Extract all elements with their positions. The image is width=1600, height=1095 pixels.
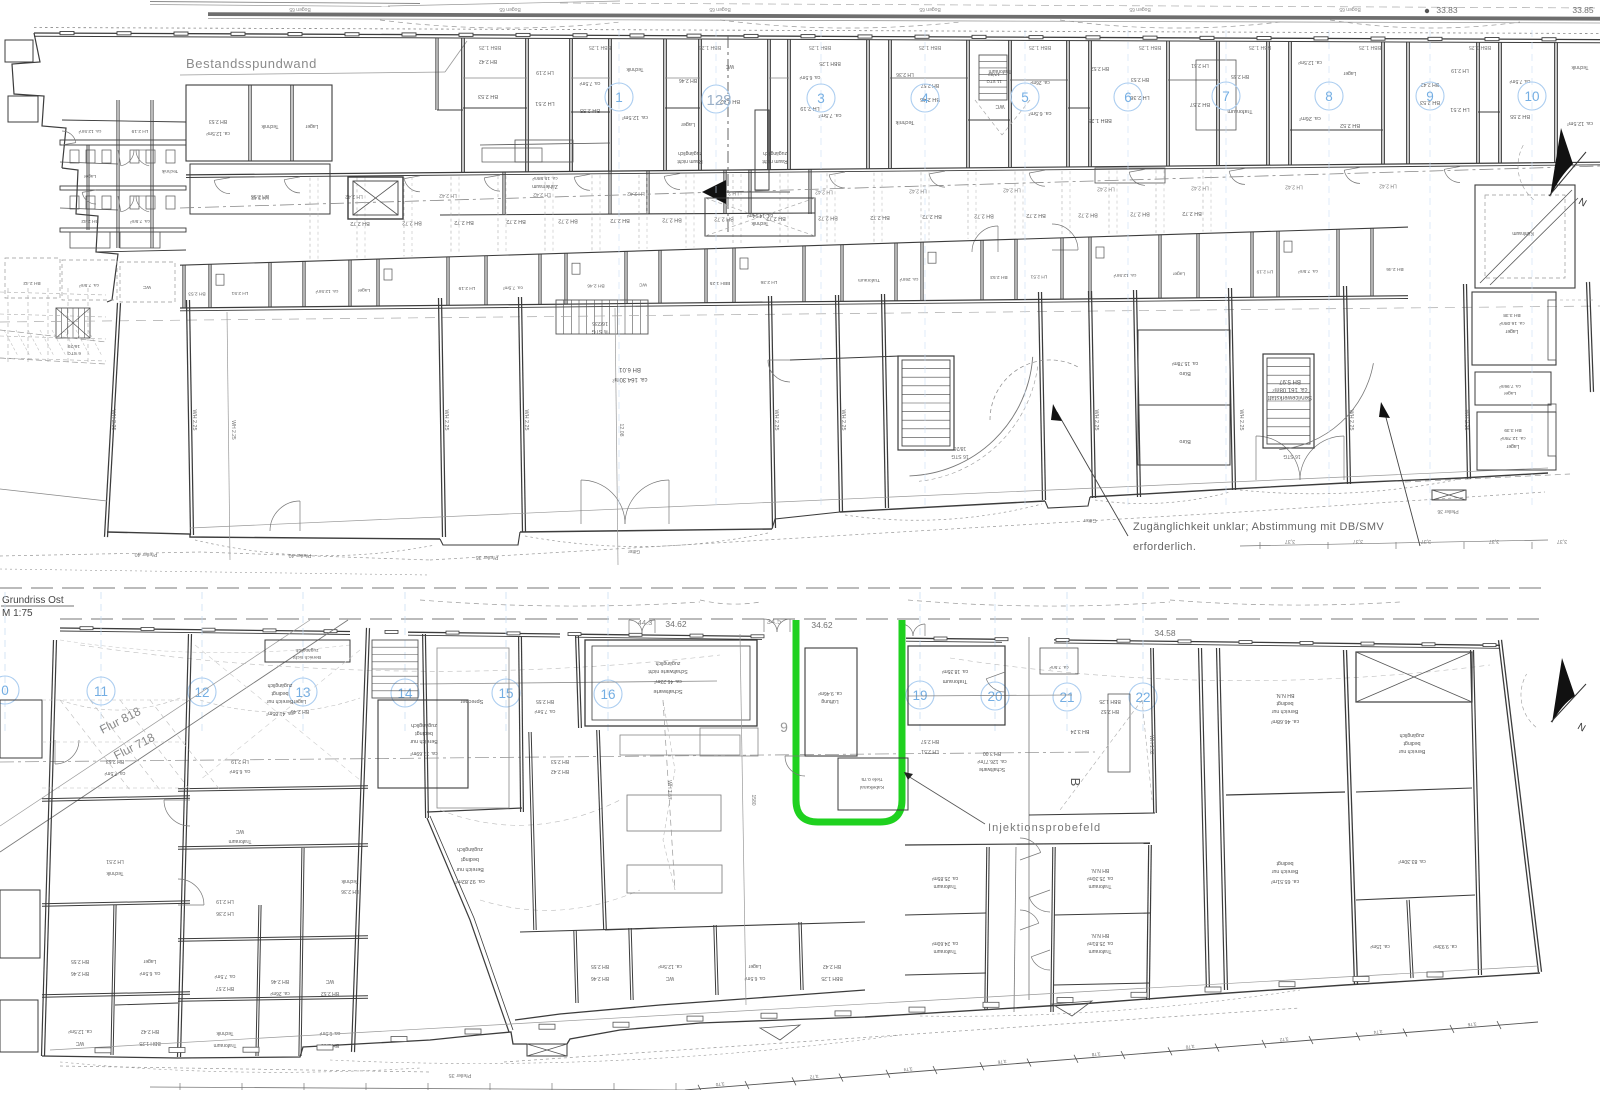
svg-text:BBH 1.25: BBH 1.25	[1469, 44, 1491, 50]
svg-text:3,74: 3,74	[903, 1066, 913, 1072]
svg-text:BH 2.53: BH 2.53	[990, 274, 1008, 280]
svg-text:ca. 14.94m²: ca. 14.94m²	[746, 212, 773, 218]
svg-text:BBH 1.25: BBH 1.25	[589, 44, 611, 50]
svg-text:Tiefe 0.75: Tiefe 0.75	[861, 776, 882, 782]
svg-text:Bogen 65: Bogen 65	[709, 6, 731, 12]
svg-text:LH 2.36: LH 2.36	[760, 279, 777, 285]
svg-text:BH 2.42: BH 2.42	[551, 768, 569, 774]
svg-text:BH 2.53: BH 2.53	[478, 93, 498, 99]
svg-text:BH 2.55: BH 2.55	[580, 107, 600, 113]
svg-text:BH 2.42: BH 2.42	[141, 1028, 159, 1034]
svg-text:LH 2.36: LH 2.36	[1130, 94, 1149, 100]
svg-text:BBH 1.25: BBH 1.25	[1139, 44, 1161, 50]
svg-text:18/26: 18/26	[954, 445, 967, 451]
svg-text:LH 2.51: LH 2.51	[921, 748, 939, 754]
svg-text:LH 2.19: LH 2.19	[1451, 67, 1469, 73]
svg-text:ca. 7.5m²: ca. 7.5m²	[1049, 665, 1069, 670]
svg-text:ca. 12.5m²: ca. 12.5m²	[1567, 120, 1593, 126]
svg-text:erforderlich.: erforderlich.	[1133, 541, 1196, 553]
svg-text:bedingt: bedingt	[1403, 740, 1421, 746]
svg-text:BBH 1.25: BBH 1.25	[1088, 117, 1112, 123]
svg-text:ca. 92.82m²: ca. 92.82m²	[455, 878, 485, 884]
svg-text:LH 2.19: LH 2.19	[1256, 269, 1273, 275]
svg-text:9: 9	[1426, 89, 1434, 104]
svg-text:ca. 7.5m²: ca. 7.5m²	[130, 218, 150, 224]
svg-text:ca. 26m²: ca. 26m²	[270, 990, 290, 996]
svg-text:LH 2.51: LH 2.51	[106, 858, 124, 864]
svg-text:BH 2.72: BH 2.72	[454, 219, 473, 225]
svg-text:LH 2.42: LH 2.42	[1097, 186, 1115, 192]
svg-text:33.83: 33.83	[1436, 5, 1458, 15]
svg-text:LH 2.42: LH 2.42	[533, 191, 551, 197]
svg-text:bedingt: bedingt	[271, 690, 289, 696]
svg-text:LH 2.42: LH 2.42	[1003, 187, 1021, 193]
svg-text:ca. 7.5m²: ca. 7.5m²	[579, 80, 600, 86]
svg-text:BBH 1.25: BBH 1.25	[1099, 698, 1121, 704]
svg-text:0: 0	[1, 683, 9, 698]
svg-text:WH 2.25: WH 2.25	[1463, 410, 1469, 431]
svg-text:Grundriss Ost: Grundriss Ost	[2, 595, 64, 606]
svg-text:Bogen 65: Bogen 65	[499, 6, 521, 12]
svg-text:zugänglich: zugänglich	[267, 682, 292, 688]
svg-text:BH 2.42: BH 2.42	[823, 963, 841, 969]
svg-text:Pfeiler 36: Pfeiler 36	[1437, 508, 1458, 514]
svg-text:ca. 12.5m²: ca. 12.5m²	[622, 114, 648, 120]
svg-text:1: 1	[615, 90, 623, 105]
svg-text:B: B	[1068, 778, 1083, 787]
svg-text:LH 2.51: LH 2.51	[1450, 106, 1469, 112]
svg-text:LH 2.51: LH 2.51	[231, 290, 248, 296]
svg-text:Gitter: Gitter	[1083, 517, 1096, 523]
svg-text:ca. 46.23m²: ca. 46.23m²	[654, 678, 682, 684]
svg-text:BH 2.53: BH 2.53	[551, 758, 569, 764]
svg-text:BH 2.72: BH 2.72	[974, 213, 993, 219]
svg-text:Raum nicht: Raum nicht	[762, 158, 788, 164]
svg-text:BH 2.53: BH 2.53	[1131, 76, 1149, 82]
svg-text:Raum nicht: Raum nicht	[677, 158, 703, 164]
svg-text:Büro: Büro	[1179, 438, 1190, 444]
svg-text:ca. 6.5m²: ca. 6.5m²	[744, 975, 765, 981]
svg-text:BH 2.72: BH 2.72	[350, 220, 369, 226]
svg-text:ca. 6.5m²: ca. 6.5m²	[799, 74, 820, 80]
svg-text:% STG: % STG	[592, 328, 609, 334]
svg-text:BH 2.53: BH 2.53	[209, 118, 227, 124]
svg-text:BH 2.46: BH 2.46	[71, 970, 89, 976]
svg-text:BBH 1.25: BBH 1.25	[1359, 44, 1381, 50]
svg-text:Büro: Büro	[1179, 370, 1190, 376]
svg-text:Zugänglichkeit unklar; Abstim: Zugänglichkeit unklar; Abstimmung mit DB…	[1133, 521, 1384, 533]
svg-text:BH N.N.: BH N.N.	[1091, 932, 1109, 938]
svg-text:BH 2.42: BH 2.42	[479, 58, 497, 64]
svg-text:Bereich nur: Bereich nur	[266, 698, 293, 704]
svg-text:ca. 15m²: ca. 15m²	[1370, 943, 1390, 949]
svg-text:BH 2.72: BH 2.72	[506, 218, 525, 224]
svg-text:WH 2.25: WH 2.25	[773, 410, 779, 431]
svg-text:WH 2.25: WH 2.25	[110, 410, 116, 431]
svg-text:Traforaum: Traforaum	[942, 678, 967, 684]
svg-text:LH 2.42: LH 2.42	[251, 194, 269, 200]
svg-text:BH 2.46: BH 2.46	[587, 283, 605, 289]
svg-text:11 STG: 11 STG	[986, 79, 1002, 84]
svg-text:16: 16	[600, 687, 615, 702]
svg-text:LH 2.42: LH 2.42	[1191, 185, 1209, 191]
svg-text:LH 2.19: LH 2.19	[131, 128, 148, 134]
svg-text:WH 1.57: WH 1.57	[666, 780, 672, 800]
svg-text:3,37: 3,37	[1557, 538, 1567, 544]
svg-text:BH 2.72: BH 2.72	[610, 217, 629, 223]
svg-text:Injektionsprobefeld: Injektionsprobefeld	[988, 822, 1101, 834]
svg-text:Schaltwarte nicht: Schaltwarte nicht	[648, 668, 688, 674]
svg-text:3: 3	[817, 91, 825, 106]
svg-text:zugänglich: zugänglich	[411, 722, 437, 728]
svg-text:BH 3.39: BH 3.39	[1504, 427, 1522, 433]
svg-text:ca. 6.5m²: ca. 6.5m²	[1028, 110, 1051, 116]
svg-text:Pfeiler 35: Pfeiler 35	[449, 1072, 472, 1078]
svg-text:Traforaum: Traforaum	[214, 1042, 237, 1048]
svg-text:BH 6.01: BH 6.01	[619, 366, 641, 372]
svg-text:Bogen 65: Bogen 65	[1129, 6, 1151, 12]
svg-text:ca. 7.5m²: ca. 7.5m²	[534, 708, 555, 714]
svg-text:ca. 9.93m²: ca. 9.93m²	[1433, 943, 1457, 949]
svg-text:Traforaum: Traforaum	[934, 883, 957, 889]
svg-text:Bereich nur: Bereich nur	[1398, 748, 1425, 754]
svg-text:WC: WC	[665, 975, 674, 981]
svg-text:Technik: Technik	[1571, 64, 1588, 70]
svg-text:BBH 1.25: BBH 1.25	[819, 60, 841, 66]
svg-text:WH 2.25: WH 2.25	[1348, 410, 1354, 431]
svg-text:ca. 15.78m²: ca. 15.78m²	[1171, 360, 1198, 366]
svg-text:zugänglich: zugänglich	[655, 660, 680, 666]
svg-text:BH 2.72: BH 2.72	[1130, 211, 1149, 217]
svg-text:ca. 6.5m²: ca. 6.5m²	[139, 970, 160, 976]
svg-text:WH 2.25: WH 2.25	[443, 410, 449, 431]
svg-text:ca. 161.08m²: ca. 161.08m²	[1272, 386, 1307, 392]
svg-text:LH 2.42: LH 2.42	[1285, 184, 1303, 190]
svg-text:1580: 1580	[750, 794, 756, 805]
svg-text:3,72: 3,72	[809, 1074, 819, 1080]
svg-text:BH 2.55: BH 2.55	[1510, 113, 1530, 119]
svg-text:ca. 26m²: ca. 26m²	[899, 276, 918, 282]
svg-text:BH 2.72: BH 2.72	[1182, 210, 1201, 216]
svg-text:ca. 7.5m²: ca. 7.5m²	[104, 770, 125, 776]
svg-text:ca. 7.5m²: ca. 7.5m²	[214, 973, 235, 979]
svg-text:21: 21	[1059, 690, 1074, 705]
svg-text:BH 2.72: BH 2.72	[1026, 212, 1045, 218]
svg-text:BH 2.72: BH 2.72	[870, 214, 889, 220]
svg-text:BH N.N.: BH N.N.	[1091, 867, 1109, 873]
svg-text:M 1:75: M 1:75	[2, 608, 33, 619]
svg-text:Bogen 65: Bogen 65	[1339, 6, 1361, 12]
svg-text:BBH 1.25: BBH 1.25	[709, 280, 730, 286]
svg-text:WH 1.52: WH 1.52	[1148, 735, 1154, 755]
svg-text:Traforaum: Traforaum	[934, 948, 957, 954]
svg-text:LH 2.51: LH 2.51	[1191, 62, 1209, 68]
svg-text:Lager: Lager	[83, 173, 96, 179]
svg-text:BH 2.57: BH 2.57	[921, 738, 939, 744]
svg-text:BH 2.55: BH 2.55	[1231, 73, 1249, 79]
svg-text:Lager: Lager	[305, 123, 318, 129]
svg-text:WC: WC	[725, 63, 734, 69]
svg-text:zugänglich: zugänglich	[457, 846, 483, 852]
svg-text:Technik: Technik	[261, 123, 278, 129]
svg-text:BH 2.52: BH 2.52	[1340, 122, 1360, 128]
svg-text:ca. 46.68m²: ca. 46.68m²	[1271, 718, 1300, 724]
svg-text:ca. 12.5m²: ca. 12.5m²	[206, 130, 230, 136]
svg-text:zugänglich: zugänglich	[295, 647, 318, 653]
svg-text:BH 2.52: BH 2.52	[321, 990, 339, 996]
svg-text:zugänglich: zugänglich	[678, 150, 702, 156]
svg-text:LH 2.42: LH 2.42	[627, 190, 645, 196]
svg-text:16 STG: 16 STG	[1283, 453, 1300, 459]
svg-text:16 STG: 16 STG	[951, 453, 968, 459]
svg-text:BH 2.57: BH 2.57	[1190, 101, 1210, 107]
svg-text:Lager: Lager	[1505, 328, 1518, 334]
svg-text:Traforaum: Traforaum	[1089, 883, 1112, 889]
svg-text:ca. 7.5m²: ca. 7.5m²	[818, 112, 841, 118]
svg-text:BBH 1.25: BBH 1.25	[919, 44, 941, 50]
svg-text:ca. 7.5m²: ca. 7.5m²	[79, 282, 99, 288]
svg-text:ca. 126.77m²: ca. 126.77m²	[977, 758, 1007, 764]
svg-text:Bereich nicht: Bereich nicht	[292, 654, 320, 660]
svg-text:LH 2.19: LH 2.19	[458, 285, 475, 291]
svg-text:WC: WC	[995, 103, 1004, 109]
svg-text:WC: WC	[235, 828, 244, 834]
svg-text:BH 2.72: BH 2.72	[662, 216, 681, 222]
svg-text:ca. 16.08m²: ca. 16.08m²	[1499, 320, 1525, 326]
svg-text:WH 2.25: WH 2.25	[191, 410, 197, 431]
svg-text:LH 2.51: LH 2.51	[1030, 273, 1047, 279]
svg-text:BBH 1.25: BBH 1.25	[479, 44, 501, 50]
svg-text:3,70: 3,70	[1185, 1044, 1195, 1050]
svg-text:7: 7	[1222, 89, 1230, 104]
svg-text:bedingt: bedingt	[461, 856, 479, 862]
svg-text:ca. 25.30m²: ca. 25.30m²	[1086, 875, 1113, 881]
svg-text:ca. 65.51m²: ca. 65.51m²	[1271, 878, 1300, 884]
svg-text:BH 2.57: BH 2.57	[216, 985, 234, 991]
svg-text:WH 2.25: WH 2.25	[523, 410, 529, 431]
svg-text:LH 2.42: LH 2.42	[909, 187, 927, 193]
svg-text:BH 3.38: BH 3.38	[1503, 312, 1521, 318]
svg-text:BH 2.46: BH 2.46	[591, 975, 609, 981]
svg-text:3,37: 3,37	[1285, 538, 1295, 544]
svg-text:128: 128	[706, 92, 731, 109]
svg-text:Bereich nur: Bereich nur	[1271, 708, 1298, 714]
svg-text:ca. 25.85m²: ca. 25.85m²	[931, 875, 958, 881]
svg-text:34.58: 34.58	[1154, 628, 1176, 638]
svg-text:Technik: Technik	[895, 119, 914, 125]
svg-text:WC: WC	[325, 978, 334, 984]
svg-text:14: 14	[397, 686, 413, 701]
svg-text:LH 2.42: LH 2.42	[439, 192, 457, 198]
svg-text:ca. 26m²: ca. 26m²	[1030, 79, 1050, 85]
svg-text:ca. 9.46m²: ca. 9.46m²	[818, 690, 842, 696]
svg-text:ca. 7.5m²: ca. 7.5m²	[503, 284, 523, 290]
svg-text:ca. 6.5m²: ca. 6.5m²	[319, 1030, 340, 1036]
svg-text:Lager: Lager	[1506, 443, 1519, 449]
svg-text:Lager: Lager	[748, 963, 761, 969]
svg-text:Lager: Lager	[1503, 390, 1516, 396]
svg-text:Lager: Lager	[681, 121, 695, 127]
svg-text:BH 2.55: BH 2.55	[71, 958, 89, 964]
svg-text:11: 11	[94, 684, 108, 699]
svg-text:Servicewerkstatt: Servicewerkstatt	[1268, 394, 1312, 400]
svg-text:LH 2.36: LH 2.36	[896, 71, 914, 77]
svg-text:LH 2.19: LH 2.19	[536, 69, 554, 75]
svg-text:BH 2.53: BH 2.53	[106, 758, 124, 764]
svg-text:LH 2.42: LH 2.42	[815, 188, 833, 194]
svg-text:BH N.N.: BH N.N.	[1275, 692, 1294, 698]
svg-text:LH 2.36: LH 2.36	[216, 910, 234, 916]
svg-text:WC: WC	[142, 284, 151, 290]
svg-text:WH 2.25: WH 2.25	[1238, 410, 1244, 431]
svg-text:ca. 12.5m²: ca. 12.5m²	[68, 1028, 92, 1034]
svg-text:WC: WC	[75, 1040, 84, 1046]
svg-text:ca. 12.78m²: ca. 12.78m²	[1500, 435, 1526, 441]
svg-text:4: 4	[921, 91, 929, 106]
svg-text:bedingt: bedingt	[1276, 860, 1294, 866]
svg-text:3,72: 3,72	[1279, 1037, 1289, 1043]
svg-text:BH 2.46: BH 2.46	[679, 77, 697, 83]
svg-text:Lager: Lager	[1343, 70, 1356, 76]
svg-text:ca. 7.96m²: ca. 7.96m²	[1499, 384, 1521, 389]
svg-text:BH 2.72: BH 2.72	[1078, 211, 1097, 217]
svg-text:LH 2.42: LH 2.42	[1379, 183, 1397, 189]
svg-text:Gitter: Gitter	[628, 548, 641, 554]
svg-text:13: 13	[295, 685, 310, 700]
svg-text:3,76: 3,76	[1467, 1022, 1477, 1028]
svg-text:34.62: 34.62	[665, 619, 687, 629]
svg-text:3,74: 3,74	[1373, 1029, 1383, 1035]
svg-text:34.5: 34.5	[767, 617, 782, 626]
svg-text:Bereich nur: Bereich nur	[1271, 868, 1298, 874]
svg-text:3,76: 3,76	[997, 1059, 1007, 1065]
svg-text:Bogen 65: Bogen 65	[289, 6, 311, 12]
svg-text:Pfeiler 40: Pfeiler 40	[135, 551, 158, 557]
svg-text:ca. 164.30m²: ca. 164.30m²	[612, 376, 647, 382]
svg-text:6: 6	[1124, 90, 1132, 105]
svg-text:BBH 1.25: BBH 1.25	[809, 44, 831, 50]
svg-text:ca. 24.60m²: ca. 24.60m²	[931, 940, 958, 946]
svg-text:ca. 12.5m²: ca. 12.5m²	[315, 288, 338, 294]
svg-text:Technik: Technik	[216, 1030, 233, 1036]
svg-text:ca. 17.69m²: ca. 17.69m²	[410, 750, 438, 756]
svg-text:Lager: Lager	[1172, 271, 1185, 277]
svg-text:Technik: Technik	[751, 220, 768, 226]
svg-text:BH 2.46: BH 2.46	[291, 708, 309, 714]
svg-text:BH 2.72: BH 2.72	[714, 216, 733, 222]
svg-text:Lager: Lager	[293, 698, 306, 704]
svg-text:zugänglich: zugänglich	[1399, 732, 1424, 738]
svg-text:BBH 1.25: BBH 1.25	[1029, 44, 1051, 50]
svg-text:8: 8	[1325, 89, 1333, 104]
svg-text:BH 2.42: BH 2.42	[81, 218, 99, 224]
svg-text:3,37: 3,37	[1489, 538, 1499, 544]
svg-text:bedingt: bedingt	[1276, 700, 1294, 706]
svg-text:WH 2.25: WH 2.25	[1093, 410, 1099, 431]
svg-text:Schaltwarte: Schaltwarte	[979, 766, 1005, 772]
svg-text:BH 2.42: BH 2.42	[23, 280, 41, 286]
svg-text:15: 15	[498, 686, 513, 701]
svg-text:LH 2.19: LH 2.19	[216, 898, 234, 904]
svg-text:WH 2.25: WH 2.25	[230, 420, 236, 440]
svg-text:ca. 12.5m²: ca. 12.5m²	[1113, 272, 1136, 278]
svg-text:Technik: Technik	[626, 66, 643, 72]
svg-text:Lüftung: Lüftung	[821, 698, 838, 704]
svg-text:33.85: 33.85	[1572, 5, 1594, 15]
svg-text:Bereich nur: Bereich nur	[456, 866, 484, 872]
svg-text:BBH 1.25: BBH 1.25	[821, 975, 843, 981]
svg-text:ca. 12.5m²: ca. 12.5m²	[78, 128, 101, 134]
svg-text:Technik: Technik	[106, 870, 123, 876]
svg-text:BH 2.53: BH 2.53	[188, 291, 206, 297]
svg-text:Pfeiler 40: Pfeiler 40	[289, 552, 312, 558]
svg-text:10: 10	[1524, 89, 1539, 104]
svg-text:ca. 83.30m²: ca. 83.30m²	[1398, 858, 1426, 864]
svg-text:ca. 12.5m²: ca. 12.5m²	[658, 963, 682, 969]
svg-text:BH 3.00: BH 3.00	[983, 750, 1001, 756]
svg-text:BH 3.24: BH 3.24	[1071, 728, 1090, 734]
svg-text:ca. 7.5m²: ca. 7.5m²	[1298, 268, 1318, 274]
svg-text:BH 2.46: BH 2.46	[271, 978, 289, 984]
svg-text:LH 2.51: LH 2.51	[535, 100, 554, 106]
svg-text:zugänglich: zugänglich	[763, 150, 787, 156]
svg-text:BH 2.72: BH 2.72	[558, 218, 577, 224]
svg-text:LH 2.19: LH 2.19	[231, 758, 249, 764]
svg-text:3,37: 3,37	[1353, 538, 1363, 544]
svg-text:Bogen 65: Bogen 65	[919, 6, 941, 12]
svg-text:Lager: Lager	[143, 958, 156, 964]
svg-text:Traforaum: Traforaum	[858, 277, 880, 283]
svg-text:BH 5.97: BH 5.97	[1279, 378, 1301, 384]
svg-text:BH 2.55: BH 2.55	[591, 963, 609, 969]
svg-text:Bereich nur: Bereich nur	[410, 738, 438, 744]
svg-text:Sprecher: Sprecher	[461, 698, 484, 704]
svg-text:Technik: Technik	[341, 878, 358, 884]
svg-text:Bestandsspundwand: Bestandsspundwand	[186, 56, 317, 71]
svg-text:Lager: Lager	[357, 287, 370, 293]
svg-text:3,70: 3,70	[715, 1081, 725, 1087]
svg-text:BH 2.52: BH 2.52	[1101, 708, 1119, 714]
svg-text:12: 12	[194, 685, 209, 700]
svg-text:BH 2.46: BH 2.46	[1386, 266, 1404, 272]
svg-text:BH 2.52: BH 2.52	[1091, 65, 1109, 71]
svg-text:ca. 6.5m²: ca. 6.5m²	[229, 768, 250, 774]
svg-text:34.62: 34.62	[811, 620, 833, 630]
svg-text:22: 22	[1135, 690, 1150, 705]
svg-text:16/235: 16/235	[592, 320, 608, 326]
svg-text:9: 9	[780, 719, 788, 735]
svg-text:ca. 18.35m²: ca. 18.35m²	[941, 668, 968, 674]
svg-text:Kühlraum: Kühlraum	[1512, 230, 1533, 236]
svg-text:6 STG: 6 STG	[67, 350, 81, 356]
svg-text:BH 2.55: BH 2.55	[536, 698, 554, 704]
svg-text:ca. 12.5m²: ca. 12.5m²	[1298, 59, 1322, 65]
svg-text:3,37: 3,37	[1421, 538, 1431, 544]
svg-text:5: 5	[1021, 90, 1029, 105]
svg-text:17/32: 17/32	[988, 72, 1000, 77]
svg-text:ca. 25.81m²: ca. 25.81m²	[1086, 940, 1113, 946]
svg-text:WC: WC	[638, 281, 647, 287]
svg-text:Schaltwarte: Schaltwarte	[653, 688, 682, 694]
svg-text:Traforaum: Traforaum	[229, 838, 252, 844]
svg-text:WH 2.25: WH 2.25	[840, 410, 846, 431]
svg-text:bedingt: bedingt	[415, 730, 433, 736]
svg-text:Technik: Technik	[161, 168, 178, 174]
svg-text:Pfeiler 35: Pfeiler 35	[476, 554, 499, 560]
svg-text:Traforaum: Traforaum	[1089, 948, 1112, 954]
svg-text:BBH 1.25: BBH 1.25	[1249, 44, 1271, 50]
svg-text:BBH 1.25: BBH 1.25	[699, 44, 721, 50]
